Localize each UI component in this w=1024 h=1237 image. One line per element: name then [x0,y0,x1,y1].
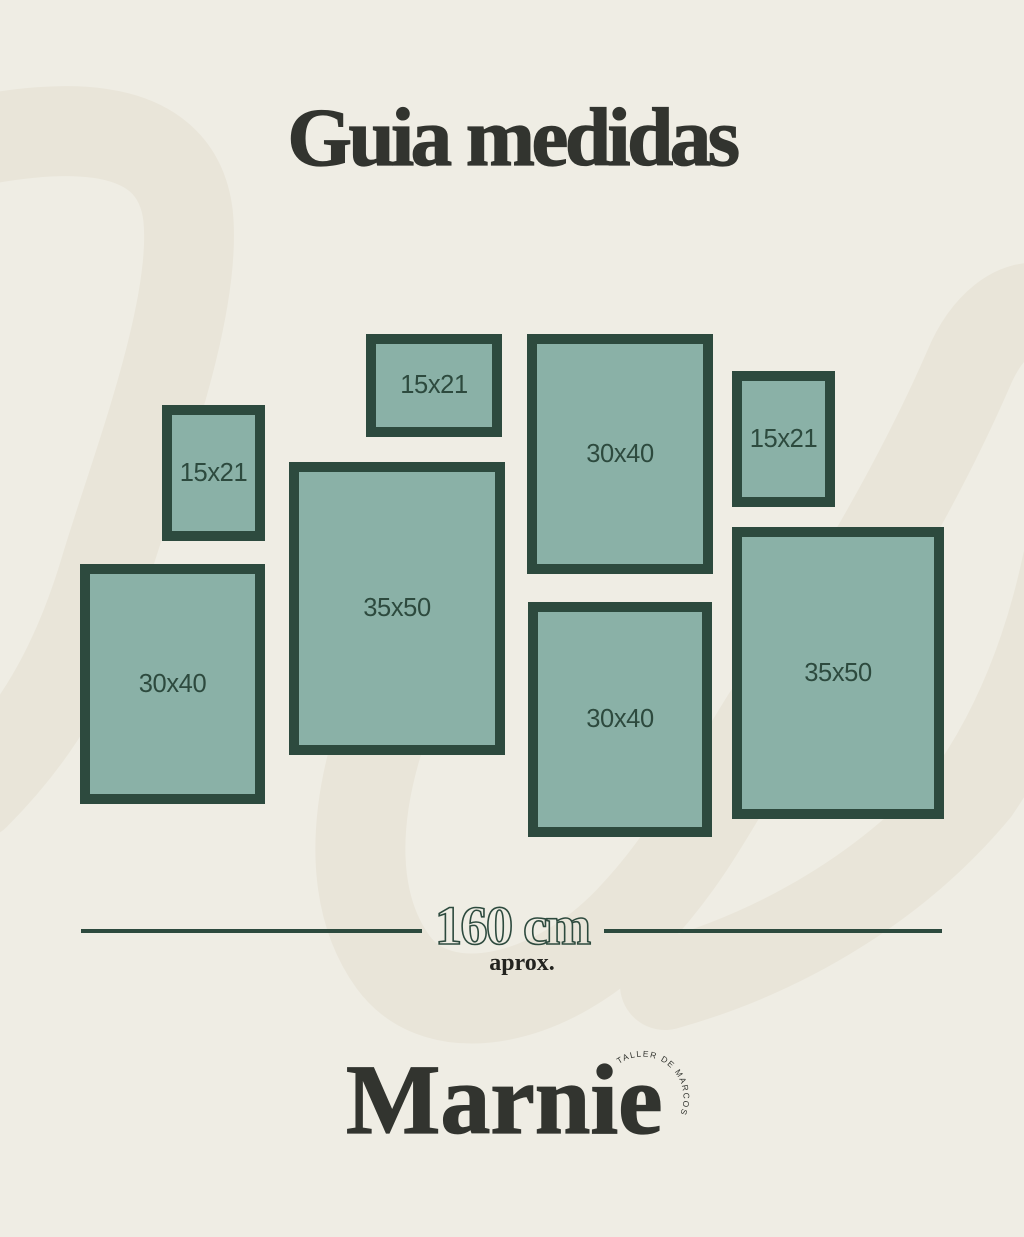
svg-text:TALLER DE MARCOS: TALLER DE MARCOS [615,1049,692,1118]
